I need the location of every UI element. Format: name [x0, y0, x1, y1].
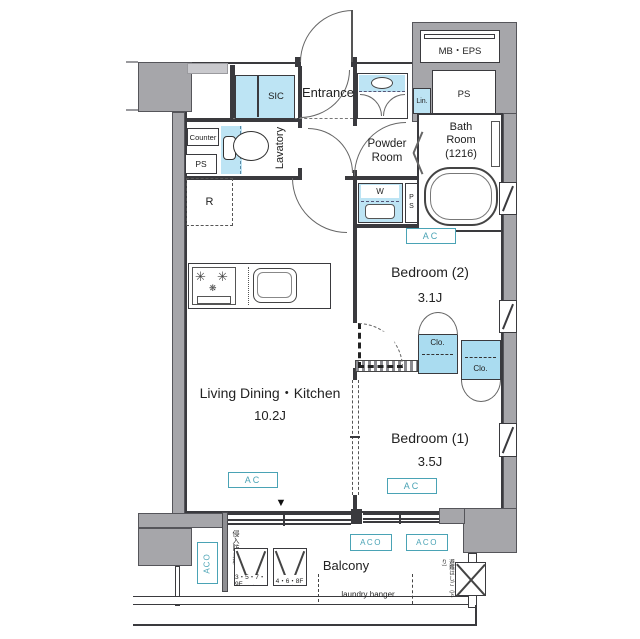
bath-room: Bath Room (1216) — [417, 113, 503, 232]
closet1-dash — [465, 357, 496, 358]
burner-icon: ✳ — [217, 269, 228, 285]
closet-bedroom1: Clo. — [461, 340, 501, 380]
bedroom1-size-label: 3.5J — [355, 452, 505, 470]
top-left-pillar — [138, 62, 192, 112]
pillar-tick-top — [126, 61, 138, 63]
front-door-leaf — [351, 10, 353, 62]
ps-shaft-vertical: P S — [405, 183, 418, 223]
washer-drum — [365, 204, 395, 219]
ps-shaft-top: PS — [432, 70, 496, 118]
closet2-dash — [422, 354, 453, 355]
sink — [253, 268, 297, 303]
escape-hatch-1: 3・5・7・9F — [234, 548, 268, 586]
ldk-balcony-window — [228, 513, 351, 525]
ac-label: AC — [245, 475, 262, 485]
washer-dash-line — [361, 201, 399, 202]
vanity-door-arc-left — [360, 94, 382, 116]
toilet-bowl — [233, 131, 269, 161]
bathtub-inner — [430, 173, 492, 220]
direction-marker: ▼ — [272, 496, 290, 510]
entrance-label: Entrance — [300, 84, 356, 100]
bath-room-label: Bath Room (1216) — [433, 121, 489, 163]
balcony-label: Balcony — [318, 557, 374, 573]
closet1-label: Clo. — [462, 363, 499, 374]
linen-label: Lin. — [416, 98, 427, 105]
burner-small-icon: ❋ — [209, 283, 217, 294]
ps-lavatory-label: PS — [195, 159, 206, 169]
ac-label: AC — [423, 231, 440, 241]
sink-inner — [257, 272, 292, 298]
aco-box-right: ACO — [406, 534, 448, 551]
laundry-hanger-label: laundry hanger — [336, 589, 400, 600]
vanity — [357, 73, 408, 119]
counter-box: Counter — [187, 128, 219, 146]
bedroom1-label: Bedroom (1) — [355, 428, 505, 448]
ldk-size-label: 10.2J — [185, 406, 355, 424]
grill-slot — [197, 296, 231, 304]
ps-shaft-top-label: PS — [458, 89, 471, 100]
balcony-right-edge — [475, 605, 477, 626]
laundry-dash-left — [318, 574, 319, 602]
bedroom2-size-label: 3.1J — [355, 288, 505, 306]
bedroom1-balcony-window — [363, 513, 439, 523]
window-mid-line — [228, 519, 351, 521]
powder-room-label: Powder Room — [360, 137, 414, 167]
window-pier — [351, 509, 362, 524]
closet2-label: Clo. — [419, 337, 456, 348]
floorplan: MB・EPS PS Entrance SIC Counter PS Lavato… — [0, 0, 640, 639]
stove: ✳ ✳ ❋ — [192, 267, 236, 305]
window-tick — [502, 186, 514, 212]
kitchen-counter: ✳ ✳ ❋ — [188, 263, 331, 309]
bottom-right-mass — [463, 508, 517, 553]
sic-label: SIC — [258, 89, 294, 103]
top-wall-band — [187, 63, 228, 74]
aco-label: ACO — [360, 538, 382, 547]
washing-machine: W — [358, 183, 403, 223]
burner-icon: ✳ — [195, 269, 206, 285]
aco-box-center: ACO — [350, 534, 392, 551]
bath-shelf — [491, 121, 500, 167]
lavatory-label: Lavatory — [274, 113, 288, 183]
mb-eps-label: MB・EPS — [421, 39, 499, 61]
bedroom1-window — [499, 423, 517, 457]
washer-label: W — [376, 187, 384, 196]
bedroom2-label: Bedroom (2) — [355, 262, 505, 282]
powder-bottom-wall — [355, 176, 417, 180]
escape-hatch-2: 4・6・8F — [273, 548, 307, 586]
window-mid-line — [363, 518, 439, 520]
faucet-oval — [371, 77, 393, 89]
pillar-tick-bottom — [126, 109, 138, 111]
building-outline-line — [133, 624, 477, 626]
ps-vertical-label: P S — [409, 194, 414, 211]
ac-label: AC — [404, 481, 421, 491]
window-step-connector — [439, 508, 465, 524]
washer-top-strip: W — [361, 185, 399, 198]
escape-ladder-box — [455, 562, 486, 596]
aco-label: ACO — [416, 538, 438, 547]
bath-window — [499, 182, 517, 215]
vanity-door-arc-right — [383, 94, 405, 116]
left-exterior-wall — [172, 112, 185, 515]
laundry-dash-right — [412, 574, 413, 604]
hatch1-label: 3・5・7・9F — [235, 575, 266, 584]
aco-box-left: ACO — [197, 542, 218, 584]
aco-label: ACO — [203, 553, 212, 573]
window-tick — [502, 304, 514, 330]
closet-bedroom2: Clo. — [418, 334, 458, 374]
bathtub — [424, 167, 498, 226]
bottom-left-pillar — [138, 528, 192, 566]
counter-divider-dotted — [248, 267, 249, 305]
window-tick — [399, 512, 401, 524]
hatch2-label: 4・6・8F — [274, 575, 305, 584]
refrigerator-label: R — [206, 196, 214, 208]
bedroom2-window — [499, 300, 517, 333]
bottom-left-wall-band — [138, 513, 227, 528]
window-tick — [502, 427, 514, 454]
front-door-arc — [300, 10, 353, 62]
refrigerator-box: R — [186, 178, 233, 226]
linen-closet: Lin. — [413, 88, 431, 114]
ac-unit-box-bedroom1: AC — [387, 478, 437, 494]
escape-ladder-label: 避難はしご（下り） — [436, 559, 454, 599]
ps-box-lavatory: PS — [185, 154, 217, 174]
ac-unit-box-ldk: AC — [228, 472, 278, 488]
mb-eps-box: MB・EPS — [420, 30, 500, 63]
balcony-parapet — [133, 596, 477, 605]
ldk-label: Living Dining・Kitchen — [185, 383, 355, 403]
window-tick — [283, 512, 285, 526]
counter-label: Counter — [190, 133, 217, 142]
ac-unit-box-bedroom2: AC — [406, 228, 456, 244]
